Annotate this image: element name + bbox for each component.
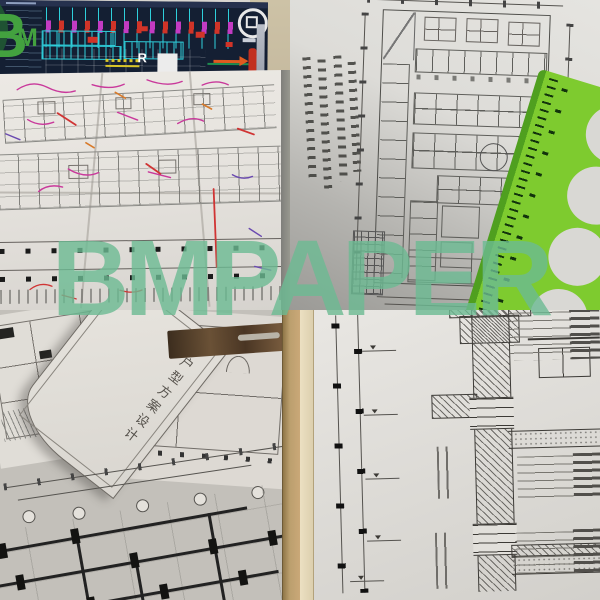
column-block bbox=[159, 583, 169, 599]
brand-watermark: BMPAPER bbox=[14, 224, 586, 332]
cad-orange-arrow bbox=[213, 60, 241, 63]
elevation-triangle-icon bbox=[372, 409, 378, 413]
handwritten-notes bbox=[302, 55, 361, 200]
navigation-sub-button bbox=[243, 38, 256, 42]
column-block bbox=[86, 596, 96, 600]
elevation-triangle-icon bbox=[370, 345, 376, 349]
column-block bbox=[70, 528, 80, 544]
ruler-circle-hole bbox=[579, 98, 600, 170]
elevation-triangle-icon bbox=[375, 535, 381, 539]
note-column bbox=[333, 55, 348, 181]
annotation-text-column bbox=[573, 452, 600, 497]
elevation-marker bbox=[364, 414, 398, 416]
elevation-marker bbox=[362, 350, 396, 352]
photo-collage: R bbox=[0, 0, 600, 600]
cad-red-block bbox=[196, 32, 205, 38]
cad-red-block bbox=[88, 37, 98, 43]
plan-table-group bbox=[466, 18, 499, 43]
paper-edge-strip bbox=[300, 310, 314, 600]
cad-red-block bbox=[226, 42, 233, 47]
vertical-note-text bbox=[435, 532, 452, 588]
column-block bbox=[129, 552, 139, 568]
plan-closet bbox=[383, 11, 416, 60]
cad-monitor-screen: R bbox=[0, 0, 268, 80]
cad-command-letter: R bbox=[137, 50, 147, 65]
elevation-marker bbox=[365, 478, 399, 480]
cad-orange-arrow-head bbox=[239, 56, 248, 66]
photo-plan-sheets: 小户型方案设计 bbox=[0, 310, 300, 600]
cad-red-block bbox=[140, 26, 148, 31]
elevation-marker bbox=[367, 540, 401, 542]
column-block bbox=[15, 574, 25, 590]
dimension-slash-ticks bbox=[331, 323, 346, 593]
wall-section-drawing bbox=[313, 310, 600, 600]
column-block bbox=[267, 530, 277, 546]
plan-table-group bbox=[508, 22, 541, 47]
cad-yellow-label bbox=[105, 57, 139, 67]
beam-line-vertical bbox=[207, 513, 227, 600]
clipboard-edge bbox=[282, 310, 300, 600]
window-in-wall bbox=[469, 397, 514, 430]
floor-slab bbox=[508, 428, 600, 448]
annotation-text-column bbox=[573, 528, 600, 573]
dimension-slash-ticks bbox=[354, 349, 368, 593]
grid-bubble bbox=[22, 509, 37, 524]
plan-table-group bbox=[424, 17, 457, 42]
note-column bbox=[302, 57, 316, 179]
elevation-triangle-icon bbox=[373, 473, 379, 477]
brand-logo-letter-m: M bbox=[17, 26, 38, 51]
column-block bbox=[208, 538, 218, 554]
dimension-ticks-top bbox=[367, 0, 563, 10]
vertical-note-text bbox=[437, 446, 454, 498]
plan-counter-row bbox=[415, 48, 548, 77]
elevation-triangle-icon bbox=[358, 576, 364, 580]
cad-table-grid-1 bbox=[42, 30, 116, 46]
column-block bbox=[238, 570, 248, 586]
cad-titlebar bbox=[0, 0, 268, 8]
note-column bbox=[317, 59, 332, 191]
ruler-circle-hole bbox=[560, 159, 600, 231]
photo-wall-section-detail bbox=[300, 310, 600, 600]
column-block bbox=[0, 543, 8, 559]
